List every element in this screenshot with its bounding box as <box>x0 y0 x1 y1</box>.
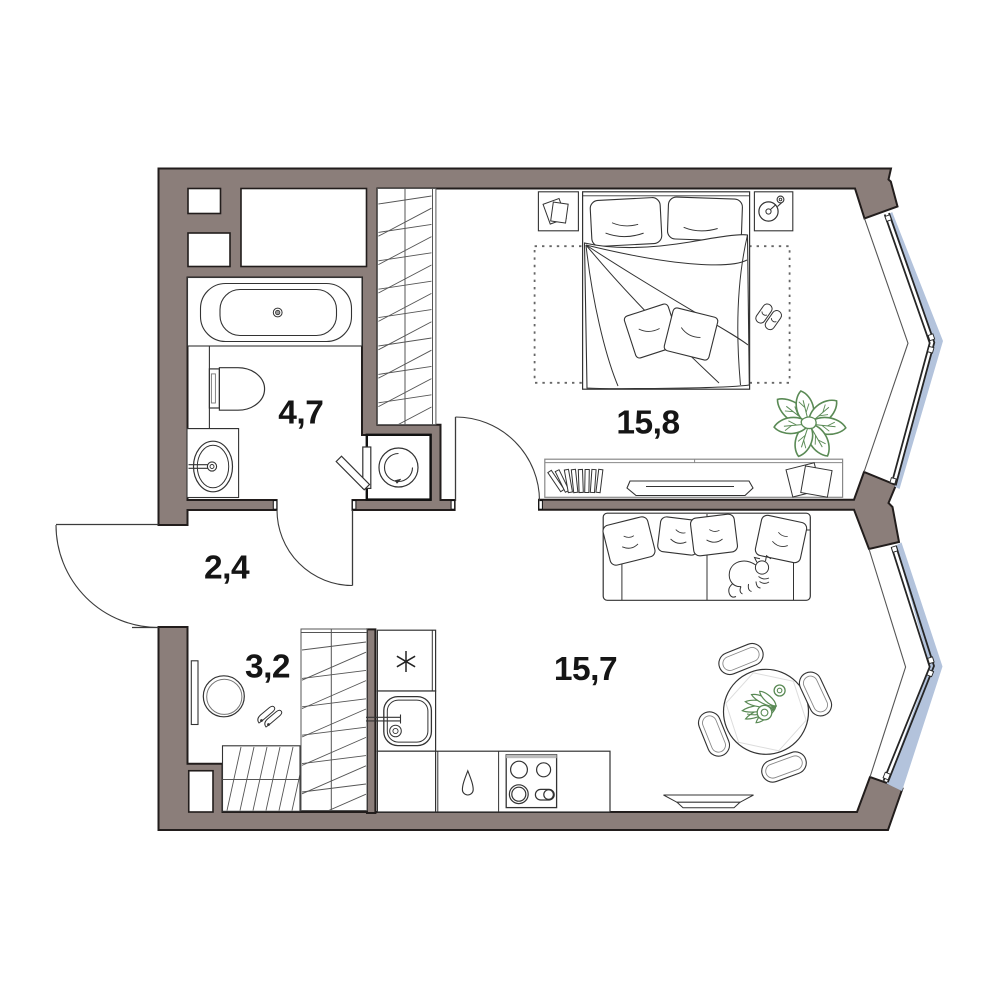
svg-text:15,7: 15,7 <box>554 651 617 688</box>
svg-text:4,7: 4,7 <box>278 394 323 431</box>
svg-text:3,2: 3,2 <box>245 649 290 686</box>
svg-text:15,8: 15,8 <box>616 404 679 441</box>
svg-text:2,4: 2,4 <box>204 549 250 586</box>
